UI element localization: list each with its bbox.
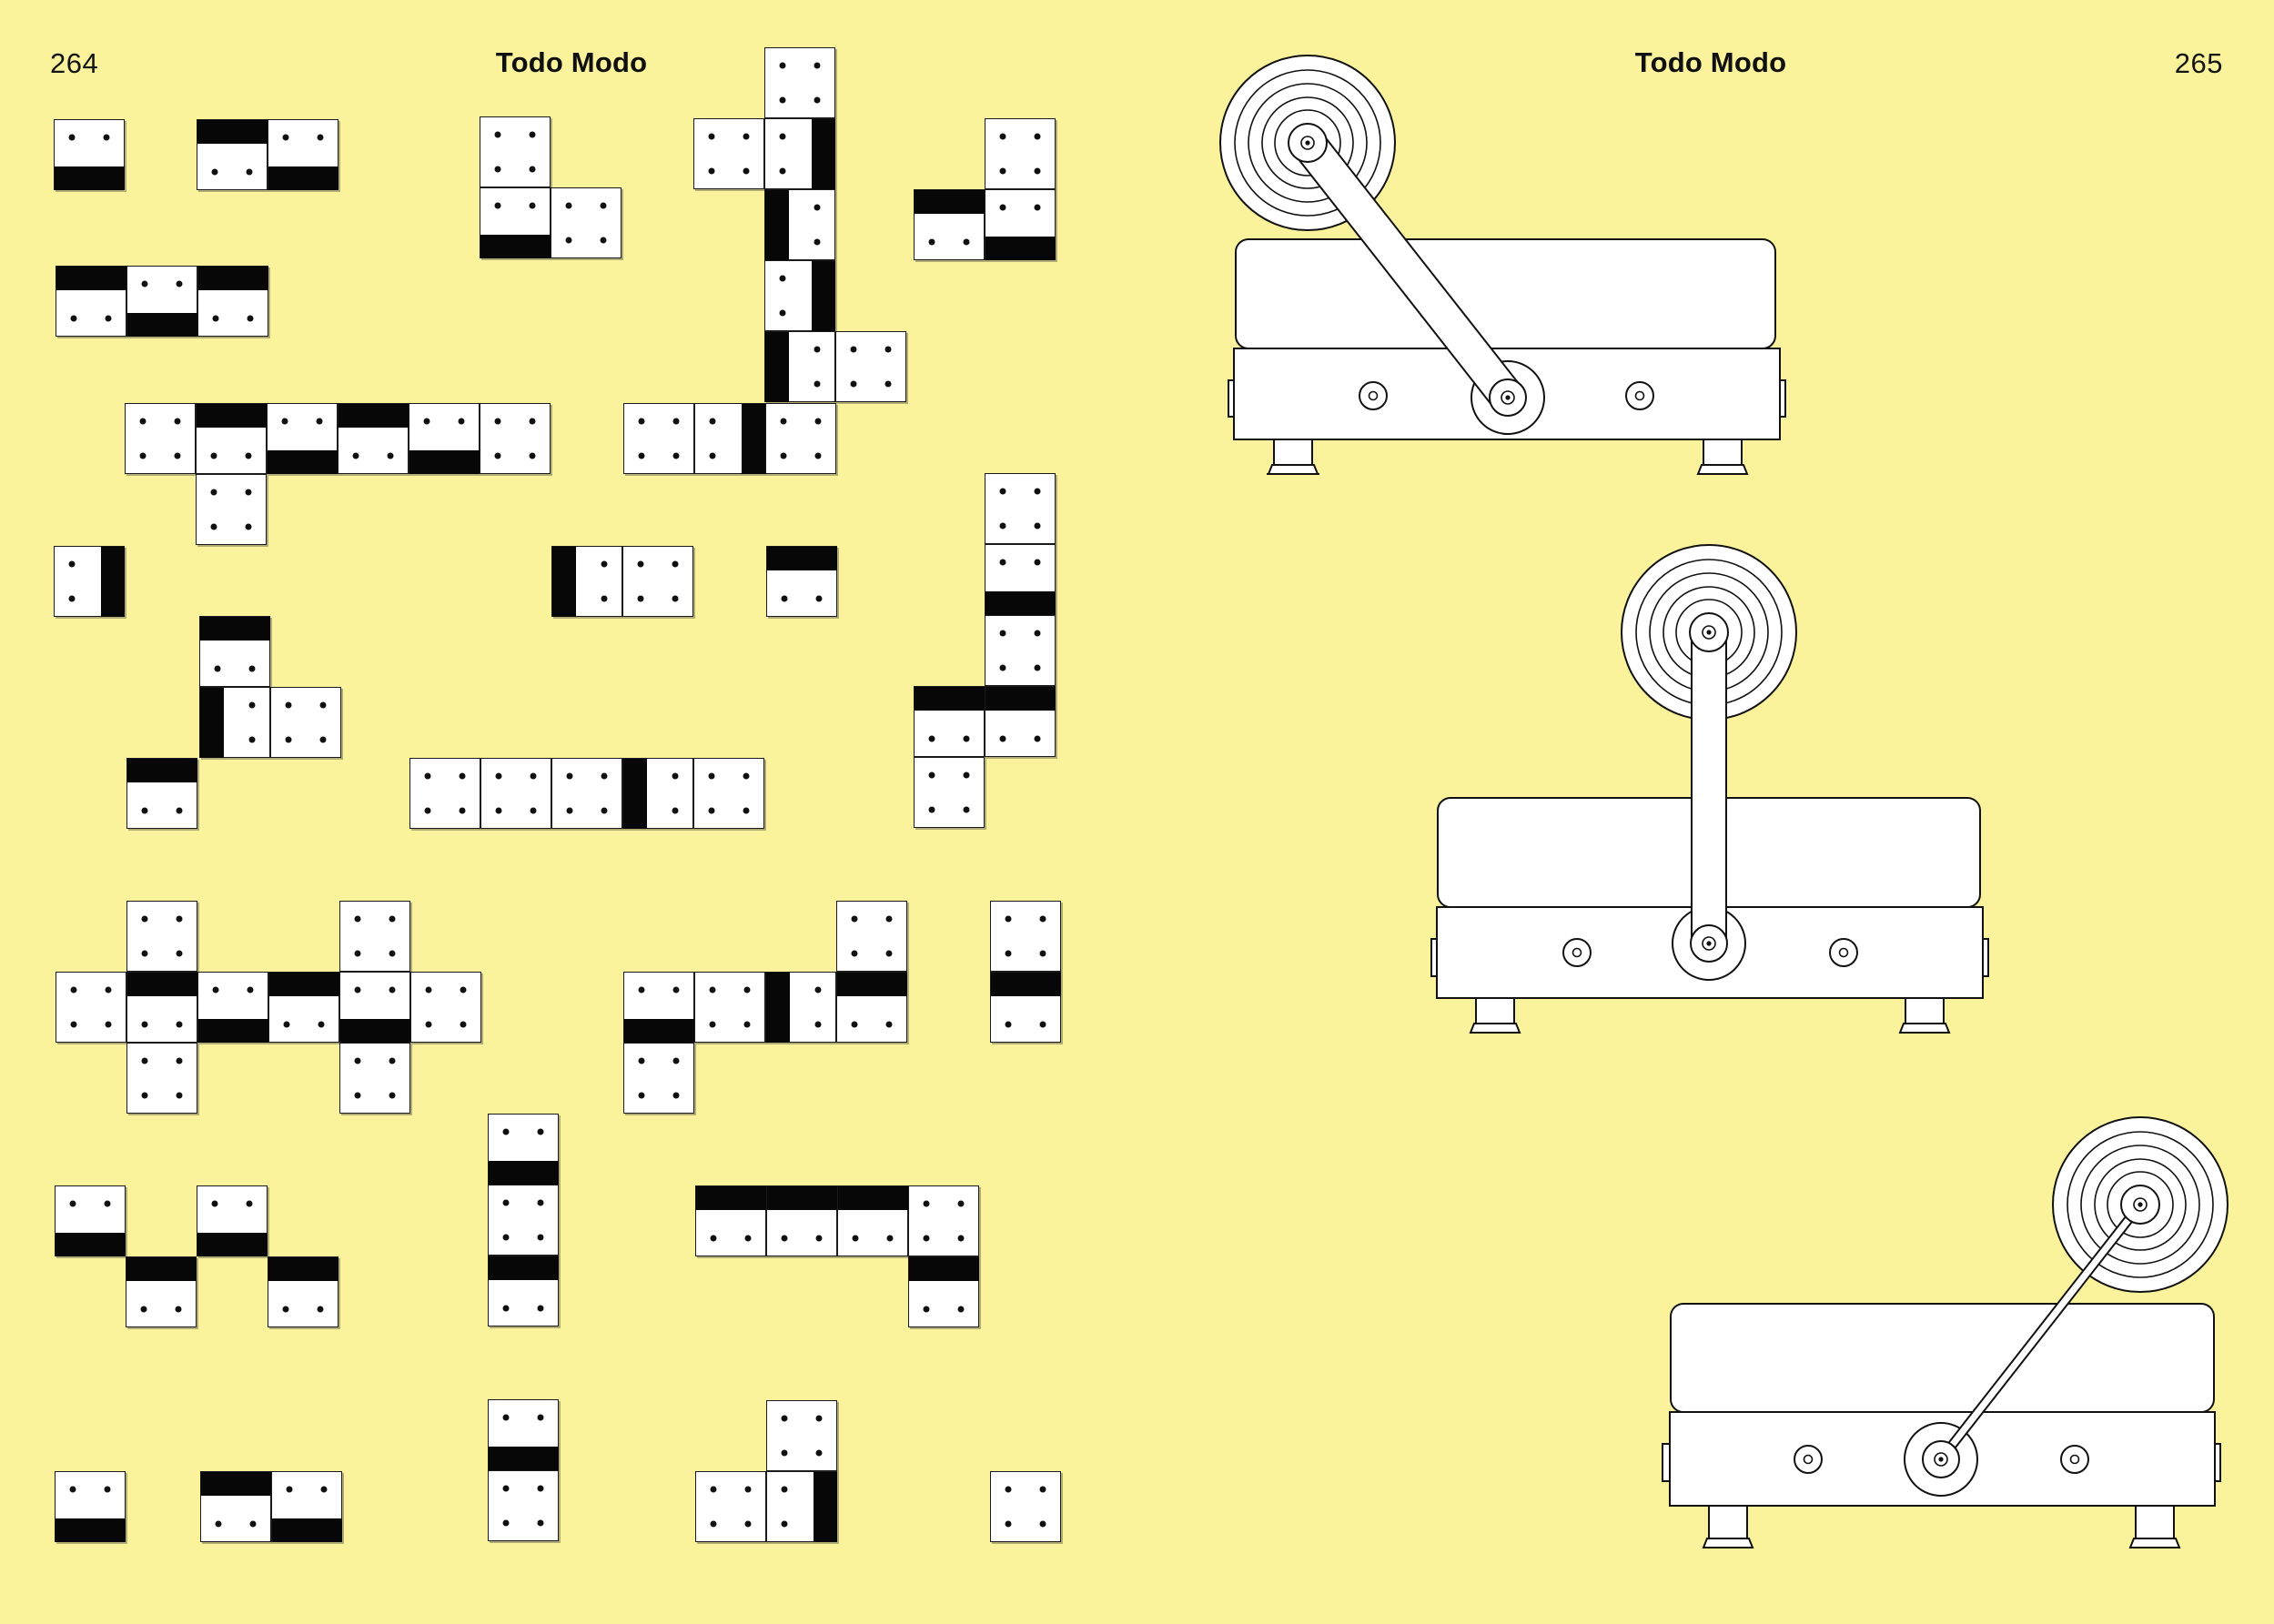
- wheel-hub: [2121, 1185, 2159, 1224]
- button-right: [2061, 1446, 2088, 1473]
- foot-right: [2130, 1538, 2179, 1548]
- book-spread: 264 Todo Modo Todo Modo 265: [0, 0, 2274, 1624]
- button-left: [1794, 1446, 1822, 1473]
- bench-bottom-group: [1663, 1117, 2228, 1548]
- side-tab-left: [1663, 1444, 1670, 1481]
- pivot-hub: [1923, 1441, 1959, 1478]
- leg-right: [2136, 1506, 2174, 1538]
- leg-left: [1709, 1506, 1747, 1538]
- mattress: [1671, 1304, 2214, 1412]
- bench-drawing-bottom: [0, 0, 2274, 1624]
- foot-left: [1703, 1538, 1753, 1548]
